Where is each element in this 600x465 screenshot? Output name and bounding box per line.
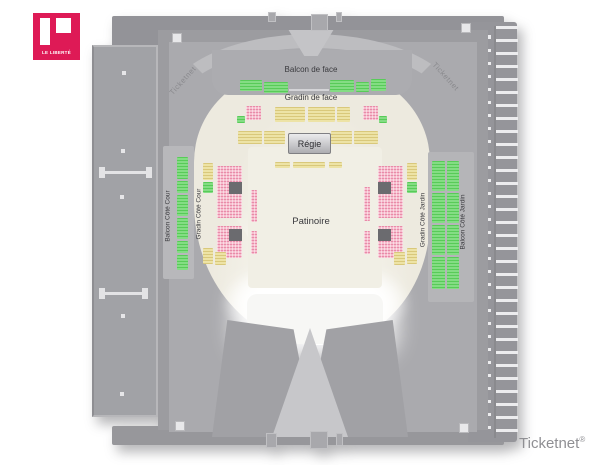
seat-block-yellow [264, 131, 285, 144]
seat-block-yellow [407, 248, 417, 264]
entrance-notch [378, 229, 391, 241]
venue-logo: LE LIBERTÉ [33, 13, 80, 60]
top-tab [268, 12, 276, 22]
section-label-gradin-de-face: Gradin de face [250, 93, 372, 102]
section-label-gradin-cote-cour: Gradin Côté Cour [196, 189, 203, 240]
seat-block-yellow [329, 162, 342, 168]
seat-block-green [177, 218, 188, 239]
seat-block-green [447, 257, 459, 289]
corridor-marker [121, 149, 125, 153]
seat-block-green [177, 255, 188, 270]
stair-ribs-outer [494, 26, 518, 438]
corridor-marker [120, 392, 124, 396]
entrance-notch [229, 182, 242, 194]
seat-block-green [264, 82, 288, 93]
corridor-door-cap [146, 167, 152, 178]
seat-block-yellow [275, 107, 305, 122]
seat-block-green [432, 257, 445, 289]
seat-block-green [240, 80, 262, 91]
side-corridor [92, 45, 158, 417]
bottom-tab [336, 433, 343, 446]
seat-block-green [447, 161, 459, 191]
seat-block-yellow [238, 131, 262, 144]
seat-block-green [432, 225, 445, 255]
corner-marker [459, 423, 469, 433]
seat-strip-pink [251, 190, 257, 222]
seat-block-pink [363, 106, 378, 120]
seat-block-yellow [308, 107, 335, 122]
patinoire-label: Patinoire [270, 216, 352, 227]
corridor-door-cap [99, 167, 105, 178]
section-label-balcon-de-face: Balcon de face [250, 65, 372, 74]
top-tab [336, 12, 342, 22]
seat-block-green [177, 195, 188, 216]
logo-mark [40, 18, 50, 45]
corridor-marker [120, 195, 124, 199]
seat-block-yellow [203, 163, 213, 180]
corridor-door-cap [142, 288, 148, 299]
section-label-gradin-cote-jardin: Gradin Côté Jardin [420, 193, 427, 248]
seat-block-green [432, 161, 445, 191]
page: Balcon de face Gradin de face Régie Pati… [0, 0, 600, 465]
bottom-tab [266, 433, 277, 448]
seat-block-yellow [337, 107, 350, 122]
seat-block-yellow [354, 131, 378, 144]
corridor-door-cap [99, 288, 105, 299]
seat-block-green [379, 116, 387, 123]
seat-block-green [447, 225, 459, 255]
seat-block-yellow [215, 252, 226, 265]
logo-wordmark: LE LIBERTÉ [35, 50, 77, 55]
seat-block-yellow [275, 162, 290, 168]
seat-block-yellow [407, 163, 417, 180]
seat-block-yellow [293, 162, 325, 168]
corridor-marker [121, 314, 125, 318]
seat-block-green [356, 82, 369, 92]
seat-block-yellow [331, 131, 352, 144]
seat-strip-pink [364, 187, 370, 221]
top-center-booth [311, 14, 328, 31]
corner-marker [461, 23, 471, 33]
brand-text: Ticketnet [519, 435, 579, 452]
entrance-notch [378, 182, 391, 194]
seat-block-green [177, 181, 188, 193]
corridor-door-bar [103, 292, 145, 295]
entrance-notch [229, 229, 242, 241]
corner-marker [172, 33, 182, 43]
logo-mark [56, 18, 71, 33]
section-label-balcon-cote-jardin: Balcon Côté Jardin [460, 195, 467, 250]
seat-block-green [330, 80, 354, 92]
balcony-rail [289, 89, 329, 91]
seat-block-green [203, 182, 213, 193]
section-label-balcon-cote-cour: Balcon Côté Cour [165, 190, 172, 241]
ticketnet-wordmark: Ticketnet® [519, 435, 585, 452]
seat-block-green [432, 193, 445, 223]
regie-label: Régie [298, 139, 322, 149]
seat-block-green [447, 193, 459, 223]
registered-mark: ® [579, 435, 585, 444]
seat-block-green [177, 241, 188, 253]
bottom-center-booth [310, 431, 328, 449]
seat-strip-pink [251, 231, 257, 254]
seating-map: Balcon de face Gradin de face Régie Pati… [0, 0, 600, 465]
seat-block-yellow [203, 248, 213, 264]
seat-block-pink [246, 106, 261, 120]
regie-booth: Régie [288, 133, 331, 154]
seat-block-green [237, 116, 245, 123]
seat-block-yellow [394, 252, 405, 265]
corner-marker [175, 421, 185, 431]
seat-block-green [371, 79, 386, 91]
seat-strip-pink [364, 231, 370, 254]
seat-block-green [407, 182, 417, 193]
corridor-door-bar [103, 171, 149, 174]
seat-block-green [177, 157, 188, 179]
corridor-marker [122, 71, 126, 75]
